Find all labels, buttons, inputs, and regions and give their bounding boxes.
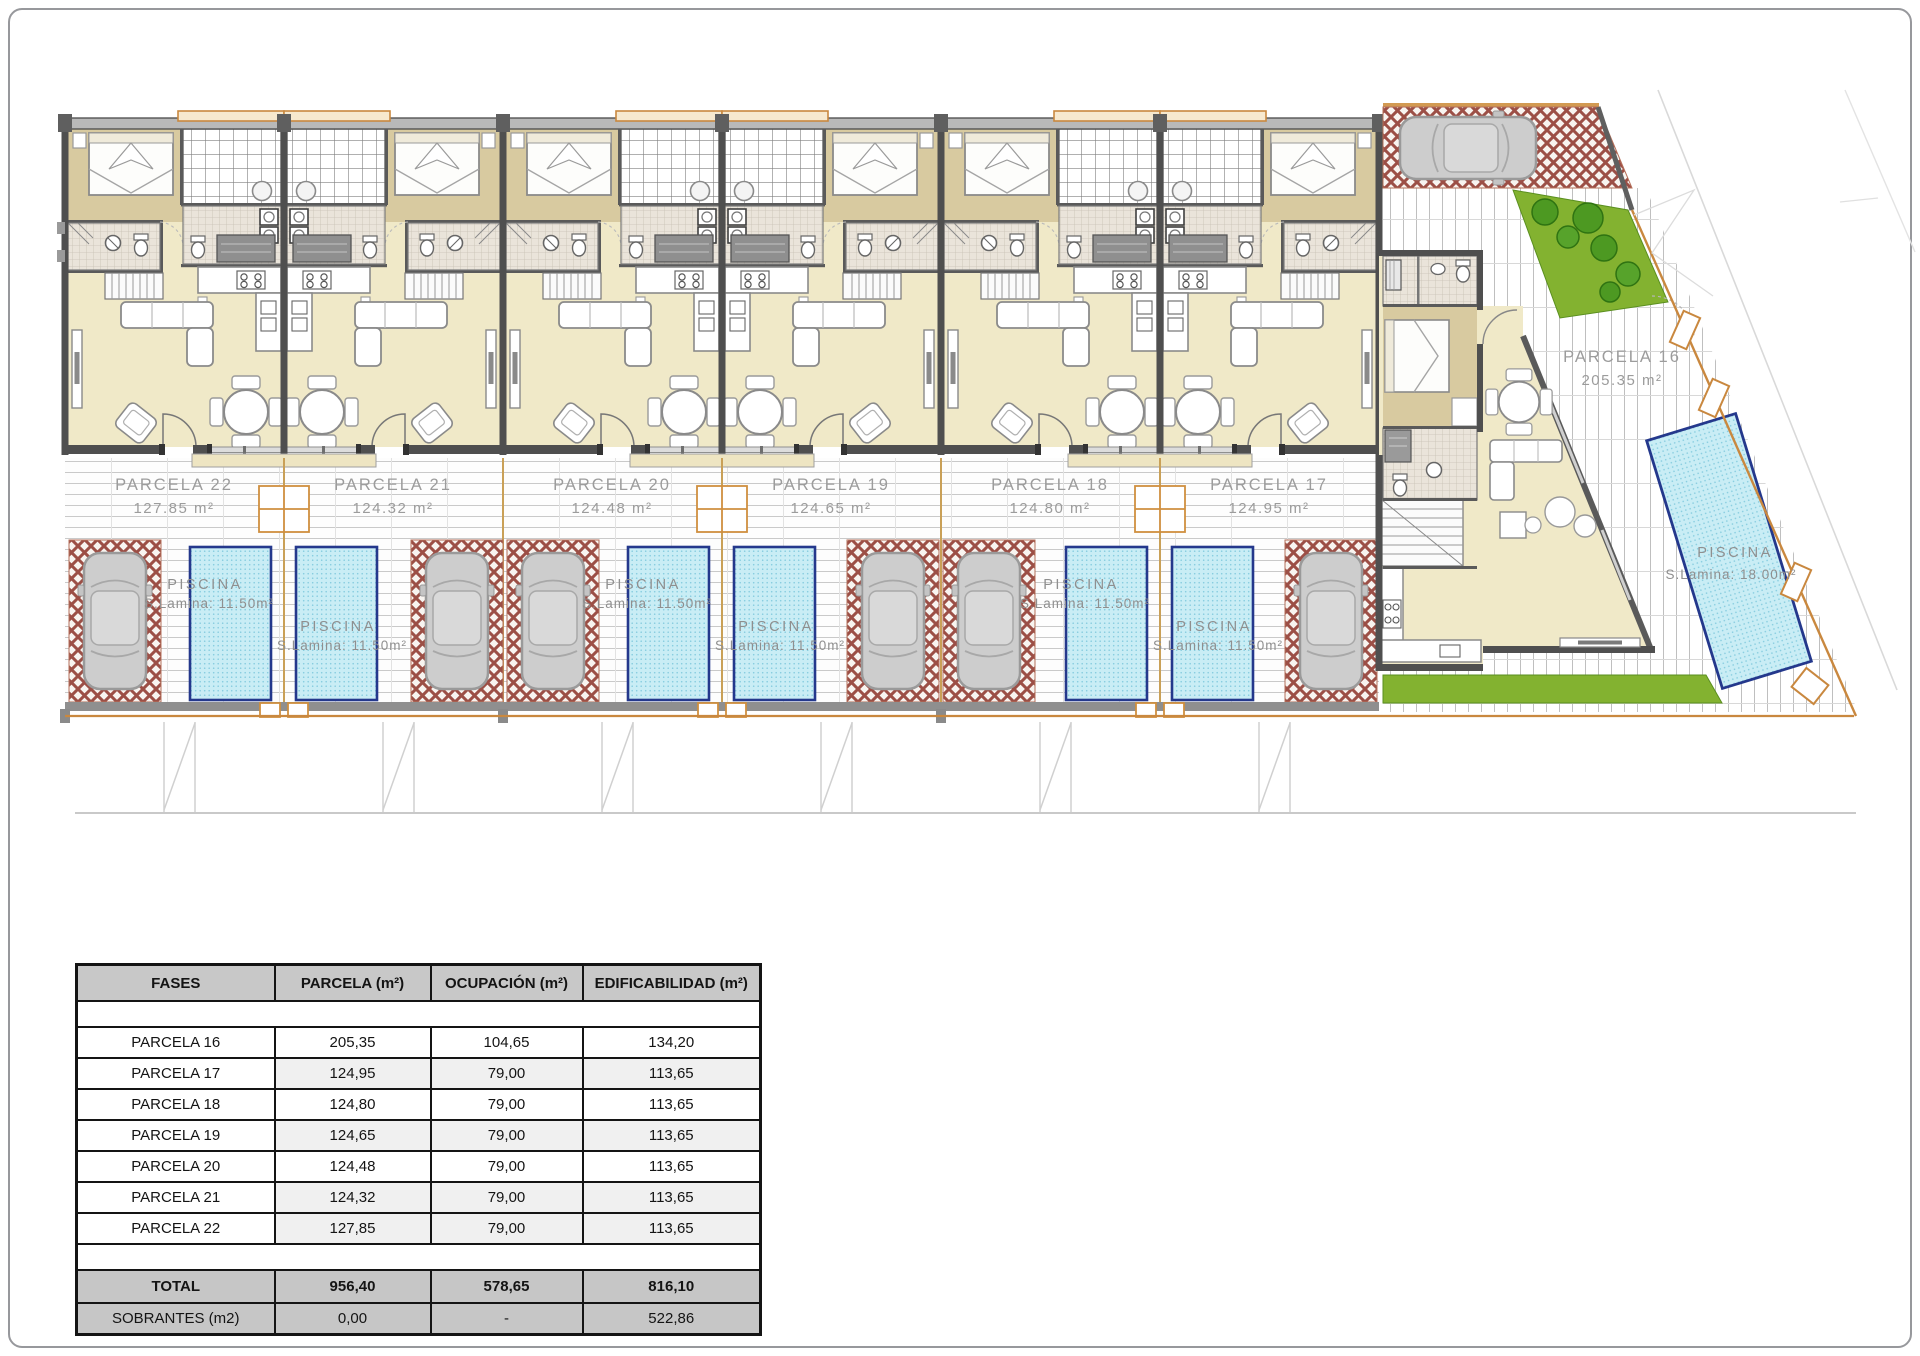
road-markings: [75, 722, 1856, 813]
table-cell: -: [431, 1303, 583, 1335]
table-cell: 127,85: [275, 1213, 431, 1244]
parcel-area: 124.95 m²: [1228, 500, 1309, 517]
svg-text:PISCINA: PISCINA: [605, 577, 681, 593]
table-cell: 124,95: [275, 1058, 431, 1089]
unit-parcela-21: [284, 111, 503, 455]
svg-text:S.Lamina: 11.50m²: S.Lamina: 11.50m²: [277, 638, 407, 653]
parcel-area: 127.85 m²: [133, 500, 214, 517]
table-row: PARCELA 20 124,48 79,00 113,65: [77, 1151, 761, 1182]
table-row: PARCELA 21 124,32 79,00 113,65: [77, 1182, 761, 1213]
table-cell: 79,00: [431, 1151, 583, 1182]
parcel-area: 124.65 m²: [790, 500, 871, 517]
table-spacer-row: [77, 1001, 761, 1027]
unit-parcela-20: [503, 111, 722, 455]
svg-text:S.Lamina: 11.50m²: S.Lamina: 11.50m²: [715, 638, 845, 653]
table-sobrantes-row: SOBRANTES (m2) 0,00 - 522,86: [77, 1303, 761, 1335]
table-cell: 113,65: [583, 1058, 761, 1089]
table-cell: 79,00: [431, 1182, 583, 1213]
table-cell: PARCELA 20: [77, 1151, 275, 1182]
table-cell: 205,35: [275, 1027, 431, 1058]
parcel-label: PARCELA 21: [334, 476, 452, 494]
svg-text:PISCINA: PISCINA: [300, 619, 376, 635]
table-cell: TOTAL: [77, 1270, 275, 1303]
parcel-label: PARCELA 20: [553, 476, 671, 494]
table-row: PARCELA 17 124,95 79,00 113,65: [77, 1058, 761, 1089]
table-cell: PARCELA 18: [77, 1089, 275, 1120]
table-cell: 113,65: [583, 1182, 761, 1213]
table-header-cell: PARCELA (m²): [275, 965, 431, 1002]
svg-text:PISCINA: PISCINA: [167, 577, 243, 593]
page: PARCELA 22 127.85 m² PARCELA 21 124.32 m…: [0, 0, 1920, 1356]
table-cell: 124,48: [275, 1151, 431, 1182]
table-cell: 816,10: [583, 1270, 761, 1303]
table-header-cell: EDIFICABILIDAD (m²): [583, 965, 761, 1002]
parcel16-label: PARCELA 16: [1563, 348, 1681, 366]
parcel-label: PARCELA 22: [115, 476, 233, 494]
table-cell: 522,86: [583, 1303, 761, 1335]
areas-table: FASES PARCELA (m²) OCUPACIÓN (m²) EDIFIC…: [75, 963, 762, 1336]
table-cell: PARCELA 16: [77, 1027, 275, 1058]
table-cell: 79,00: [431, 1058, 583, 1089]
table-cell: PARCELA 22: [77, 1213, 275, 1244]
svg-text:S.Lamina: 11.50m²: S.Lamina: 11.50m²: [582, 596, 712, 611]
table-total-row: TOTAL 956,40 578,65 816,10: [77, 1270, 761, 1303]
unit-parcela-19: [722, 111, 941, 455]
unit-parcela-22: [65, 111, 284, 455]
unit-parcela-17: [1160, 111, 1379, 455]
parcel-label: PARCELA 17: [1210, 476, 1328, 494]
table-cell: 124,32: [275, 1182, 431, 1213]
table-cell: 956,40: [275, 1270, 431, 1303]
parcel-area: 124.80 m²: [1009, 500, 1090, 517]
parcel-area: 124.32 m²: [352, 500, 433, 517]
table-header-row: FASES PARCELA (m²) OCUPACIÓN (m²) EDIFIC…: [77, 965, 761, 1002]
table-cell: 578,65: [431, 1270, 583, 1303]
svg-text:PISCINA: PISCINA: [738, 619, 814, 635]
svg-text:S.Lamina: 18.00m²: S.Lamina: 18.00m²: [1665, 567, 1796, 582]
svg-text:S.Lamina: 11.50m²: S.Lamina: 11.50m²: [144, 596, 274, 611]
table-cell: 104,65: [431, 1027, 583, 1058]
table-spacer-row: [77, 1244, 761, 1270]
table-cell: PARCELA 19: [77, 1120, 275, 1151]
unit-parcela-18: [941, 111, 1160, 455]
svg-text:PISCINA: PISCINA: [1043, 577, 1119, 593]
svg-text:PISCINA: PISCINA: [1176, 619, 1252, 635]
table-cell: SOBRANTES (m2): [77, 1303, 275, 1335]
table-cell: 79,00: [431, 1213, 583, 1244]
table-cell: PARCELA 17: [77, 1058, 275, 1089]
table-row: PARCELA 19 124,65 79,00 113,65: [77, 1120, 761, 1151]
parcel16-area: 205.35 m²: [1581, 372, 1662, 389]
table-cell: 124,80: [275, 1089, 431, 1120]
site-plan: PARCELA 22 127.85 m² PARCELA 21 124.32 m…: [0, 0, 1920, 860]
parcel-label: PARCELA 19: [772, 476, 890, 494]
table-row: PARCELA 22 127,85 79,00 113,65: [77, 1213, 761, 1244]
svg-text:S.Lamina: 11.50m²: S.Lamina: 11.50m²: [1020, 596, 1150, 611]
table-header-cell: FASES: [77, 965, 275, 1002]
table-cell: 134,20: [583, 1027, 761, 1058]
parcel-area: 124.48 m²: [571, 500, 652, 517]
table-cell: 113,65: [583, 1151, 761, 1182]
table-cell: 124,65: [275, 1120, 431, 1151]
table-cell: 79,00: [431, 1089, 583, 1120]
parcel-label: PARCELA 18: [991, 476, 1109, 494]
table-header-cell: OCUPACIÓN (m²): [431, 965, 583, 1002]
table-cell: 79,00: [431, 1120, 583, 1151]
table-cell: 0,00: [275, 1303, 431, 1335]
table-cell: 113,65: [583, 1213, 761, 1244]
table-cell: PARCELA 21: [77, 1182, 275, 1213]
table-cell: 113,65: [583, 1120, 761, 1151]
svg-text:S.Lamina: 11.50m²: S.Lamina: 11.50m²: [1153, 638, 1283, 653]
table-row: PARCELA 16 205,35 104,65 134,20: [77, 1027, 761, 1058]
table-cell: 113,65: [583, 1089, 761, 1120]
parcel16-grass-strip: [1383, 675, 1722, 703]
svg-text:PISCINA: PISCINA: [1697, 545, 1773, 561]
table-row: PARCELA 18 124,80 79,00 113,65: [77, 1089, 761, 1120]
